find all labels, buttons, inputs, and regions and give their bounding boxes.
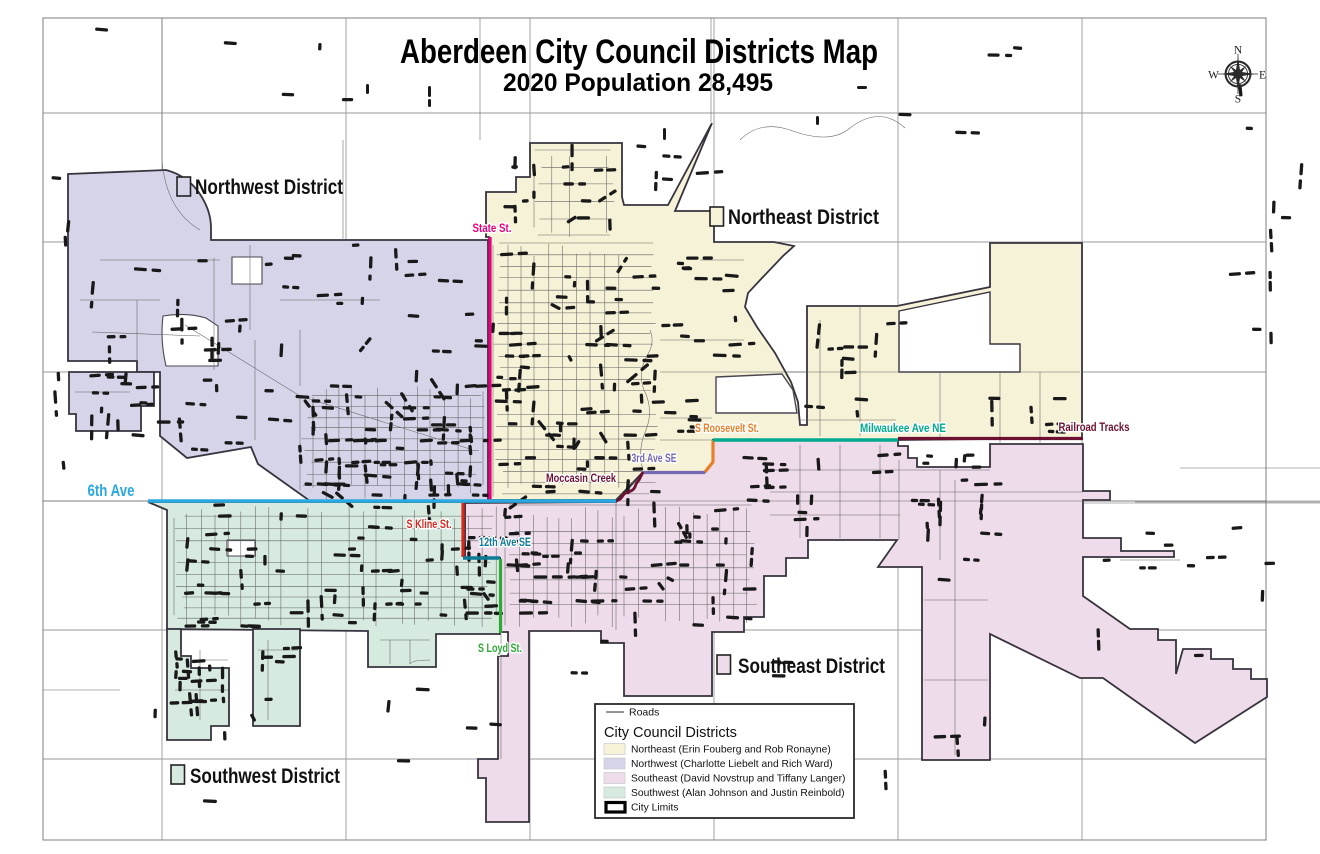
svg-text:Southwest District: Southwest District [190, 764, 340, 788]
svg-text:Aberdeen City Council District: Aberdeen City Council Districts Map [400, 33, 878, 71]
svg-text:Railroad Tracks: Railroad Tracks [1059, 420, 1130, 434]
svg-text:2020 Population 28,495: 2020 Population 28,495 [503, 69, 773, 97]
svg-text:W: W [1208, 70, 1219, 82]
svg-text:E: E [1259, 70, 1266, 82]
svg-text:Southeast District: Southeast District [738, 654, 885, 678]
svg-text:S: S [1235, 94, 1241, 106]
svg-text:Northwest (Charlotte Liebelt: Northwest (Charlotte Liebelt and Rich Wa… [631, 759, 833, 770]
svg-text:Moccasin Creek: Moccasin Creek [546, 471, 616, 485]
svg-text:S Roosevelt St.: S Roosevelt St. [695, 421, 759, 435]
svg-text:3rd Ave SE: 3rd Ave SE [632, 451, 677, 465]
svg-text:City Limits: City Limits [631, 803, 678, 814]
svg-text:Northeast (Erin Fouberg and Ro: Northeast (Erin Fouberg and Rob Ronayne) [631, 745, 831, 756]
svg-text:Roads: Roads [629, 707, 659, 719]
svg-text:6th Ave: 6th Ave [88, 482, 135, 500]
svg-text:S Loyd St.: S Loyd St. [478, 641, 522, 655]
svg-text:Southwest (Alan Johnson and Ju: Southwest (Alan Johnson and Justin Reinb… [631, 788, 845, 799]
svg-text:N: N [1234, 45, 1243, 57]
svg-text:S Kline St.: S Kline St. [407, 517, 452, 531]
svg-text:City Council Districts: City Council Districts [604, 725, 737, 741]
svg-text:Northeast District: Northeast District [728, 205, 879, 229]
svg-text:Southeast (David Novstrup and: Southeast (David Novstrup and Tiffany La… [631, 774, 845, 785]
svg-text:Milwaukee Ave NE: Milwaukee Ave NE [860, 421, 946, 435]
svg-text:Northwest District: Northwest District [195, 175, 343, 199]
svg-text:12th Ave SE: 12th Ave SE [479, 535, 531, 549]
svg-text:State St.: State St. [473, 221, 512, 235]
